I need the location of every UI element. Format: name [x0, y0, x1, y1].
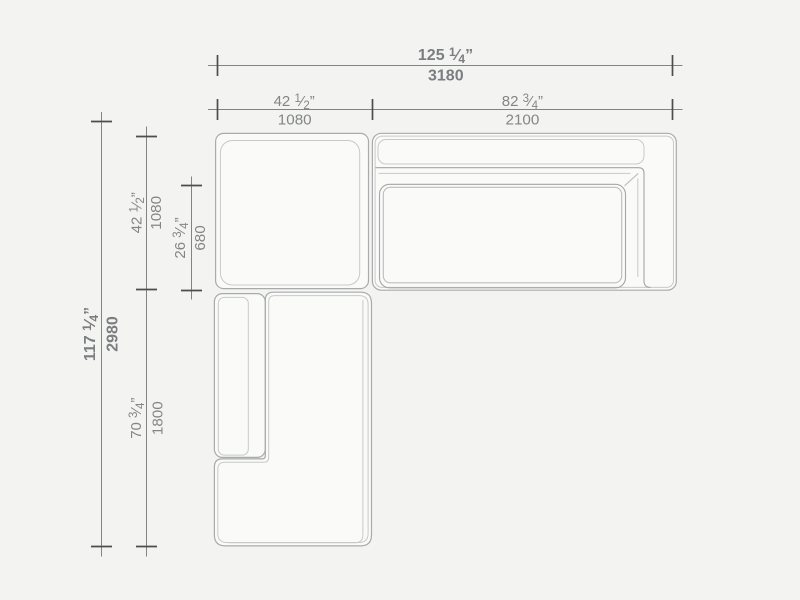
svg-text:1080: 1080 [278, 111, 312, 128]
svg-text:2980: 2980 [105, 316, 122, 352]
svg-text:125 1⁄4”: 125 1⁄4” [418, 45, 473, 66]
svg-text:2100: 2100 [506, 111, 540, 128]
svg-text:3180: 3180 [428, 68, 464, 85]
svg-text:117 1⁄4”: 117 1⁄4” [80, 307, 101, 361]
svg-text:680: 680 [192, 225, 209, 250]
svg-text:1800: 1800 [150, 401, 167, 435]
svg-text:1080: 1080 [148, 196, 165, 230]
